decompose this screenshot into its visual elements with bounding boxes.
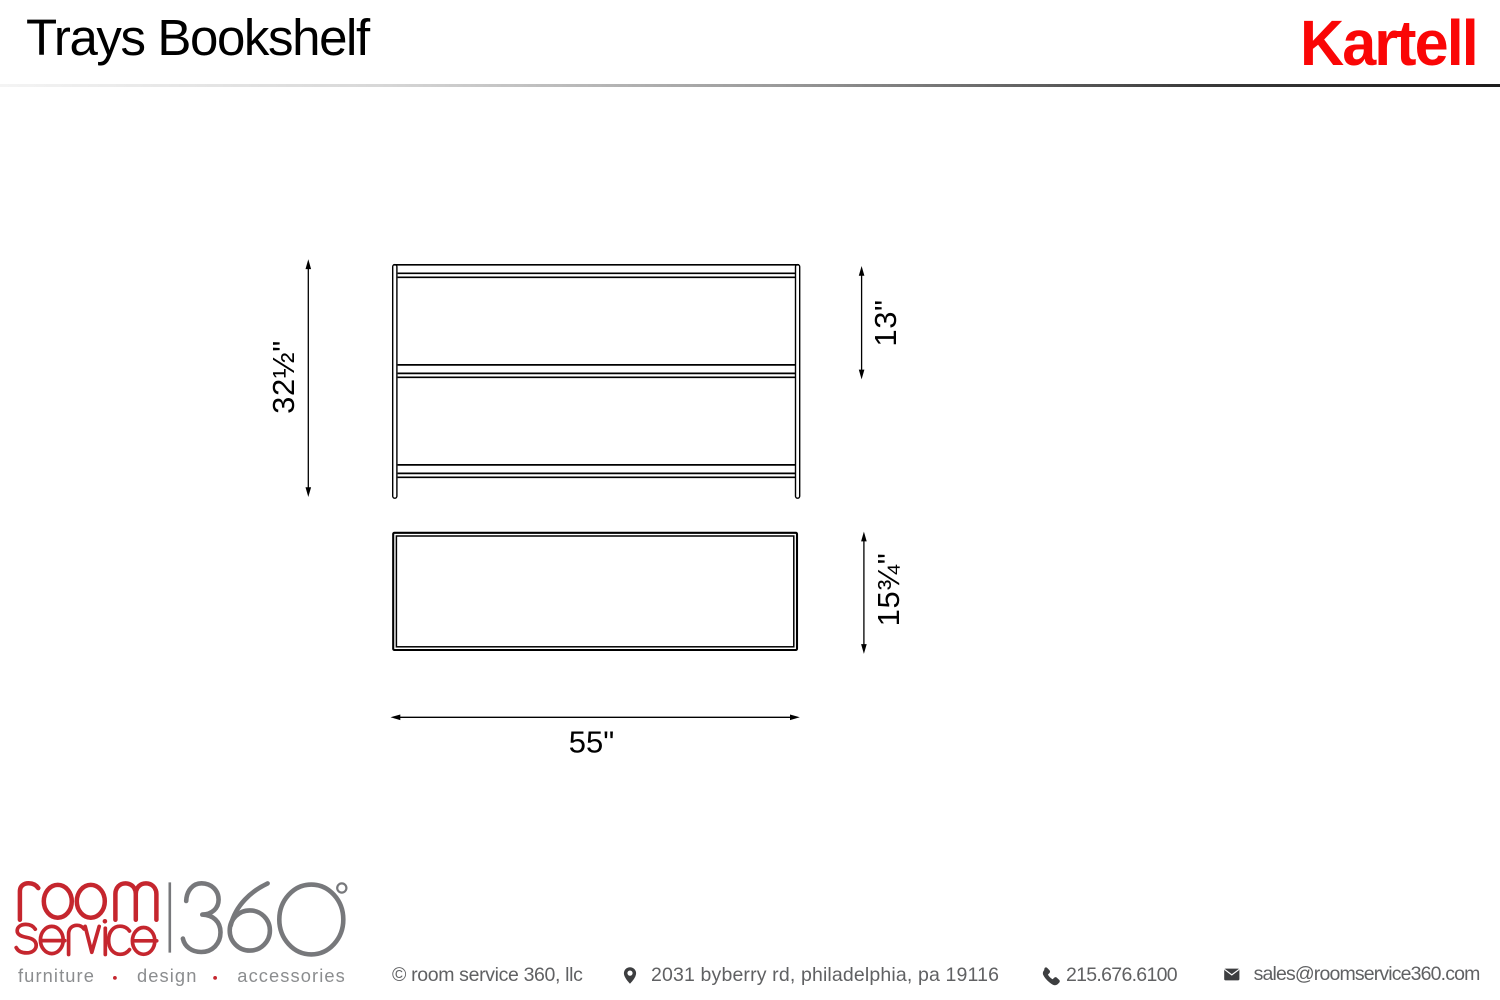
svg-text:© room service 360, llc: © room service 360, llc (392, 964, 583, 986)
svg-text:55": 55" (569, 724, 615, 759)
svg-text:design: design (137, 965, 197, 986)
svg-text:15¾": 15¾" (871, 553, 906, 627)
svg-text:accessories: accessories (237, 965, 346, 986)
svg-text:furniture: furniture (18, 965, 95, 986)
svg-text:32½": 32½" (266, 340, 301, 414)
svg-text:13": 13" (868, 299, 903, 346)
svg-text:215.676.6100: 215.676.6100 (1066, 964, 1178, 986)
svg-text:sales@roomservice360.com: sales@roomservice360.com (1254, 963, 1480, 985)
svg-text:2031 byberry rd, philadelphia,: 2031 byberry rd, philadelphia, pa 19116 (651, 964, 999, 986)
